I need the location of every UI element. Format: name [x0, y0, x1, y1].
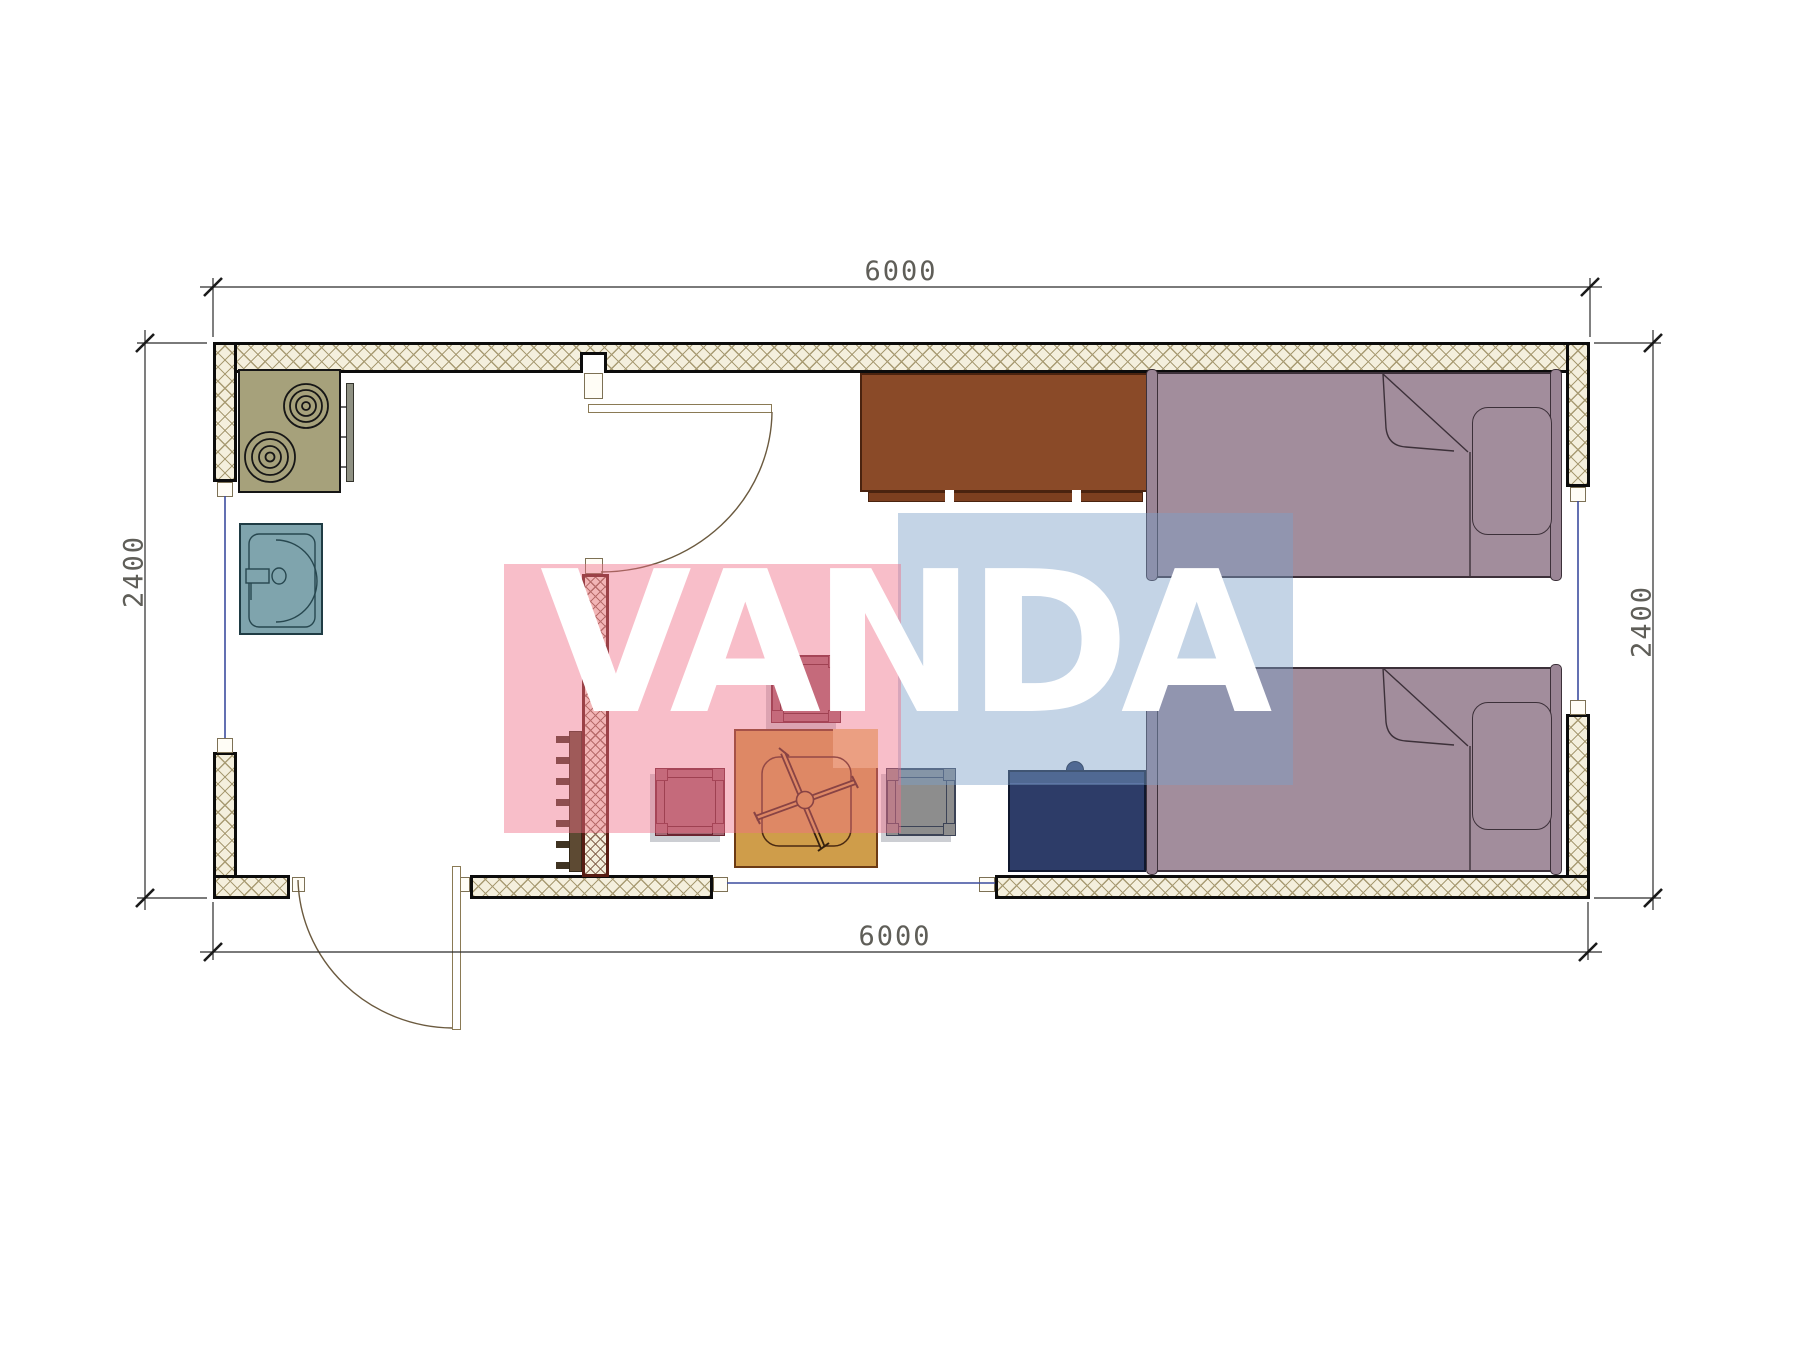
wall-right-upper: [1566, 342, 1590, 487]
wall-top: [213, 342, 1590, 373]
floor-plan-canvas: VANDA 6000 6000 2400 2400: [0, 0, 1800, 1350]
wardrobe-base-gap: [945, 490, 954, 504]
stool-leg: [943, 823, 956, 836]
window-sill: [217, 482, 233, 497]
kitchen-counter-edge: [346, 383, 354, 482]
coat-rack-hook: [556, 862, 569, 869]
window-sill: [713, 877, 728, 892]
window-sill: [1570, 700, 1586, 715]
wall-bottom-right: [995, 875, 1590, 899]
top-door-leaf: [588, 404, 772, 413]
watermark-text: VANDA: [540, 546, 1264, 742]
wall-bottom-center: [470, 875, 713, 899]
wall-right-lower: [1566, 714, 1590, 899]
wardrobe: [860, 373, 1150, 492]
wall-bottom-left-stub: [213, 875, 290, 899]
sink: [239, 523, 323, 635]
window-sill: [1570, 487, 1586, 502]
top-door-sill: [584, 373, 603, 399]
entrance-door-leaf: [452, 866, 461, 1030]
window-sill: [217, 738, 233, 753]
dimension-label-left: 2400: [119, 512, 150, 632]
nightstand: [1008, 770, 1146, 872]
dimension-label-top: 6000: [841, 256, 961, 287]
bed-lower-pillow: [1472, 702, 1552, 830]
bed-upper-pillow: [1472, 407, 1552, 535]
dimension-label-bottom: 6000: [835, 921, 955, 952]
wall-left-upper: [213, 342, 237, 482]
door-jamb-block: [292, 877, 305, 892]
wardrobe-base: [868, 492, 1143, 502]
window-sill: [979, 877, 995, 892]
stove: [238, 369, 341, 493]
dimension-label-right: 2400: [1627, 562, 1658, 682]
wardrobe-base-gap: [1072, 490, 1081, 504]
top-door-hinge-notch: [580, 352, 607, 373]
coat-rack-hook: [556, 841, 569, 848]
